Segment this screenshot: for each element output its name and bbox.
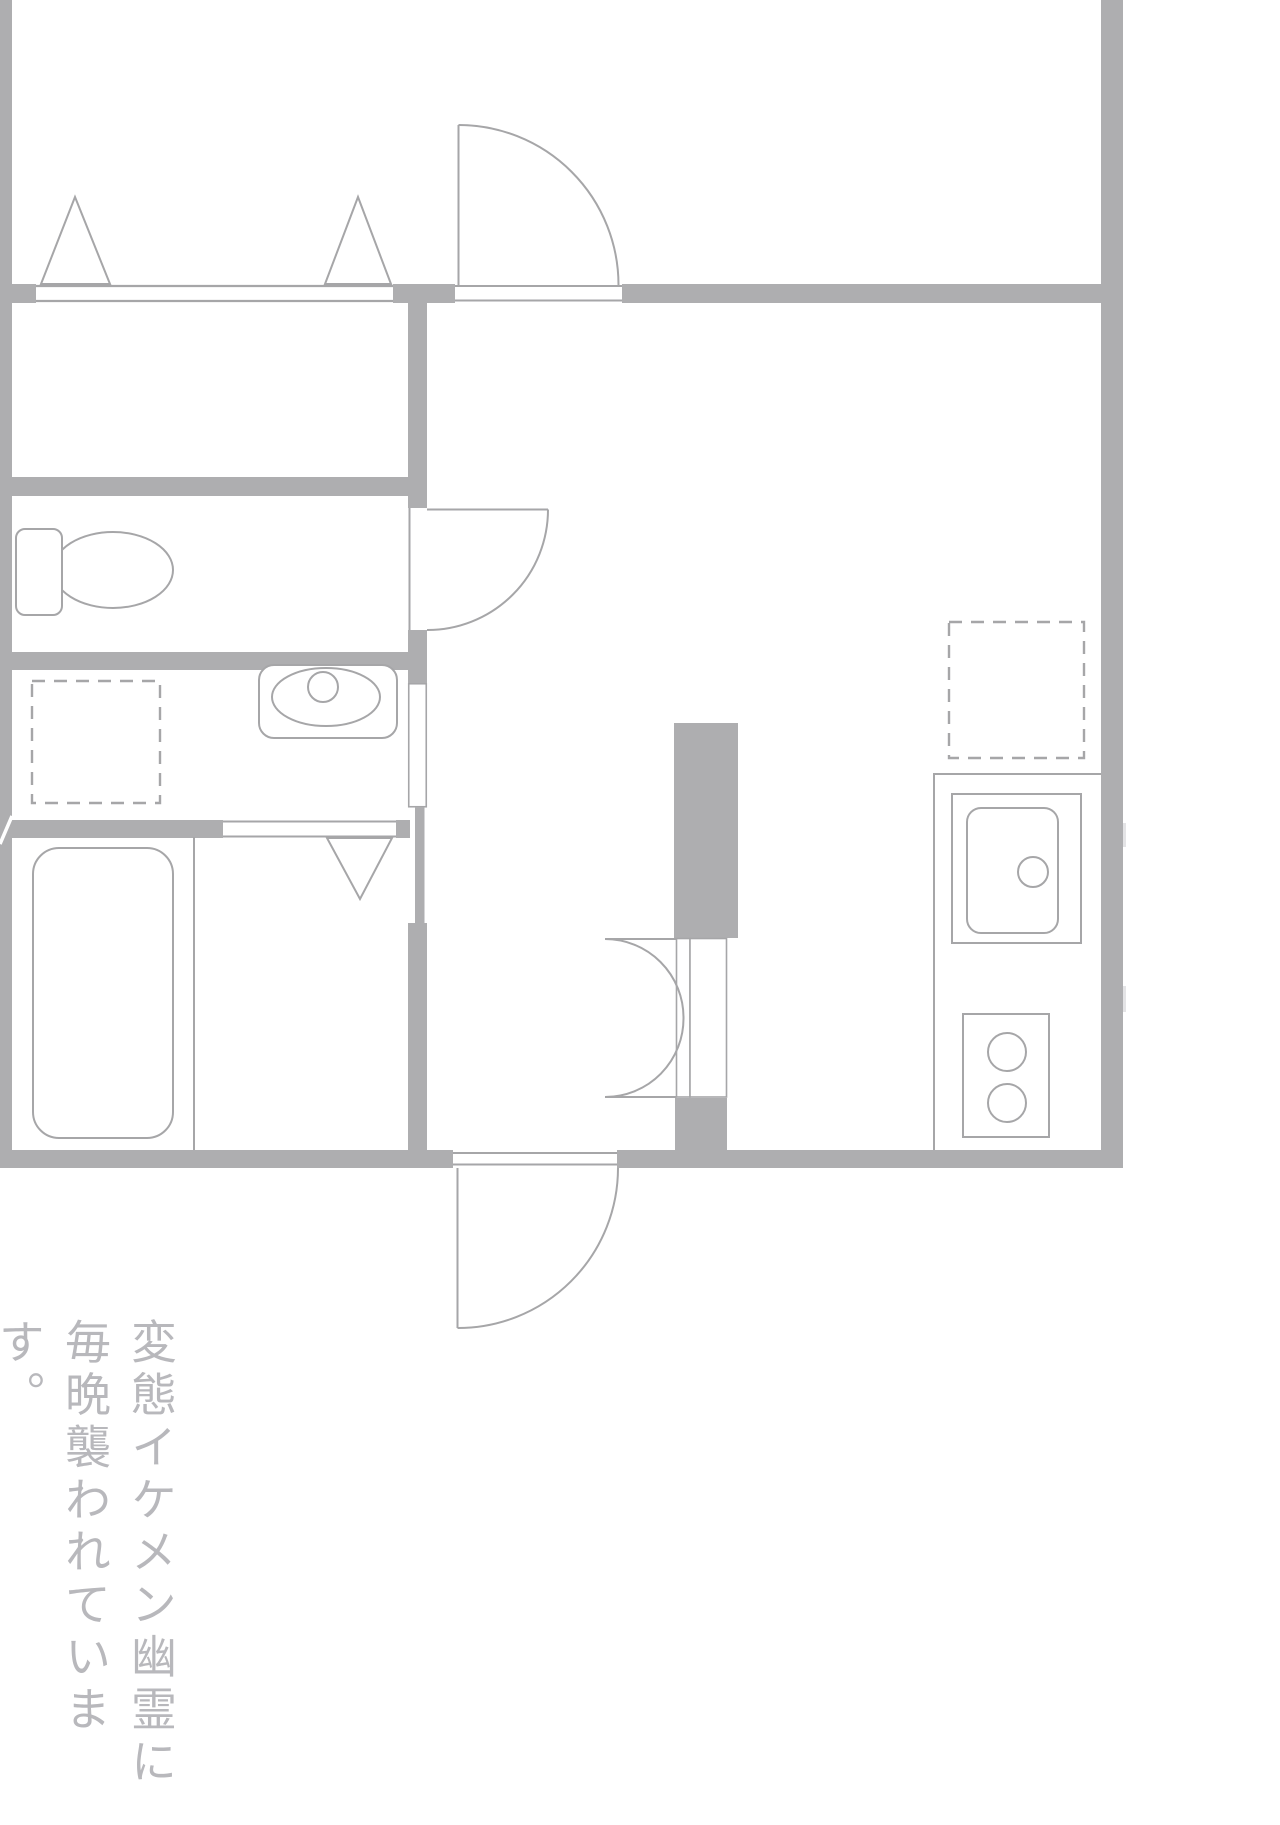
washroom-sliding-door-opening [409, 684, 427, 807]
toilet-bowl-icon [53, 532, 173, 608]
folding-door-triangle-right [325, 197, 391, 284]
wall-corridor-seg3 [408, 923, 427, 1150]
folding-door-triangle-left [41, 197, 110, 284]
double-swing-door [605, 939, 727, 1098]
washing-machine-space-icon [32, 681, 160, 803]
wall-washroom-bath-seg2 [396, 820, 410, 838]
wall-right [1101, 0, 1123, 1168]
wall-bottom-seg1 [0, 1150, 453, 1168]
stove-burner-top-icon [988, 1033, 1026, 1071]
refrigerator-space-icon [949, 622, 1084, 758]
door-swing-arc [459, 125, 619, 285]
wall-closet-toilet [12, 477, 408, 496]
toilet-tank-icon [16, 529, 62, 615]
caption-line-1: 変態イケメン幽霊に [117, 1318, 183, 1825]
washbasin-faucet-icon [308, 672, 338, 702]
double-door-swing-arcs [605, 939, 684, 1097]
kitchen-faucet-icon [1018, 857, 1048, 887]
bathtub-icon [33, 848, 173, 1138]
wall-corridor-seg1 [408, 302, 427, 508]
caption-line-2: 毎晩襲われています。 [0, 1318, 117, 1825]
tick-mark-right-upper [1123, 823, 1126, 847]
wall-block-bottom-center [675, 1098, 727, 1168]
floorplan-page: 変態イケメン幽霊に 毎晩襲われています。 [0, 0, 1280, 1825]
wall-top-seg2 [393, 284, 455, 303]
wall-top-seg1 [12, 284, 36, 303]
closet-folding-doors [36, 197, 393, 301]
tick-mark-right-lower [1123, 986, 1126, 1012]
kitchen [934, 622, 1101, 1150]
double-door-panel-right [690, 939, 727, 1098]
floorplan-drawing [0, 0, 1280, 1825]
toilet-door-swing-arc [427, 510, 548, 631]
wall-washroom-bath-seg1 [12, 820, 223, 838]
wall-left [0, 0, 12, 1168]
stove-burner-bottom-icon [988, 1084, 1026, 1122]
bath-folding-door-triangle [327, 838, 392, 899]
entrance-door [453, 1153, 618, 1328]
wall-corridor-seg2 [408, 630, 427, 683]
bathroom [33, 822, 396, 1151]
toilet-room [16, 508, 548, 630]
bedroom-door [455, 125, 622, 301]
entrance-door-swing-arc [458, 1168, 619, 1328]
wall-top-seg3 [622, 284, 1101, 303]
caption: 変態イケメン幽霊に 毎晩襲われています。 [51, 1318, 183, 1825]
washroom-sliding-door-panel [415, 807, 425, 923]
pillar-partition [674, 723, 738, 938]
